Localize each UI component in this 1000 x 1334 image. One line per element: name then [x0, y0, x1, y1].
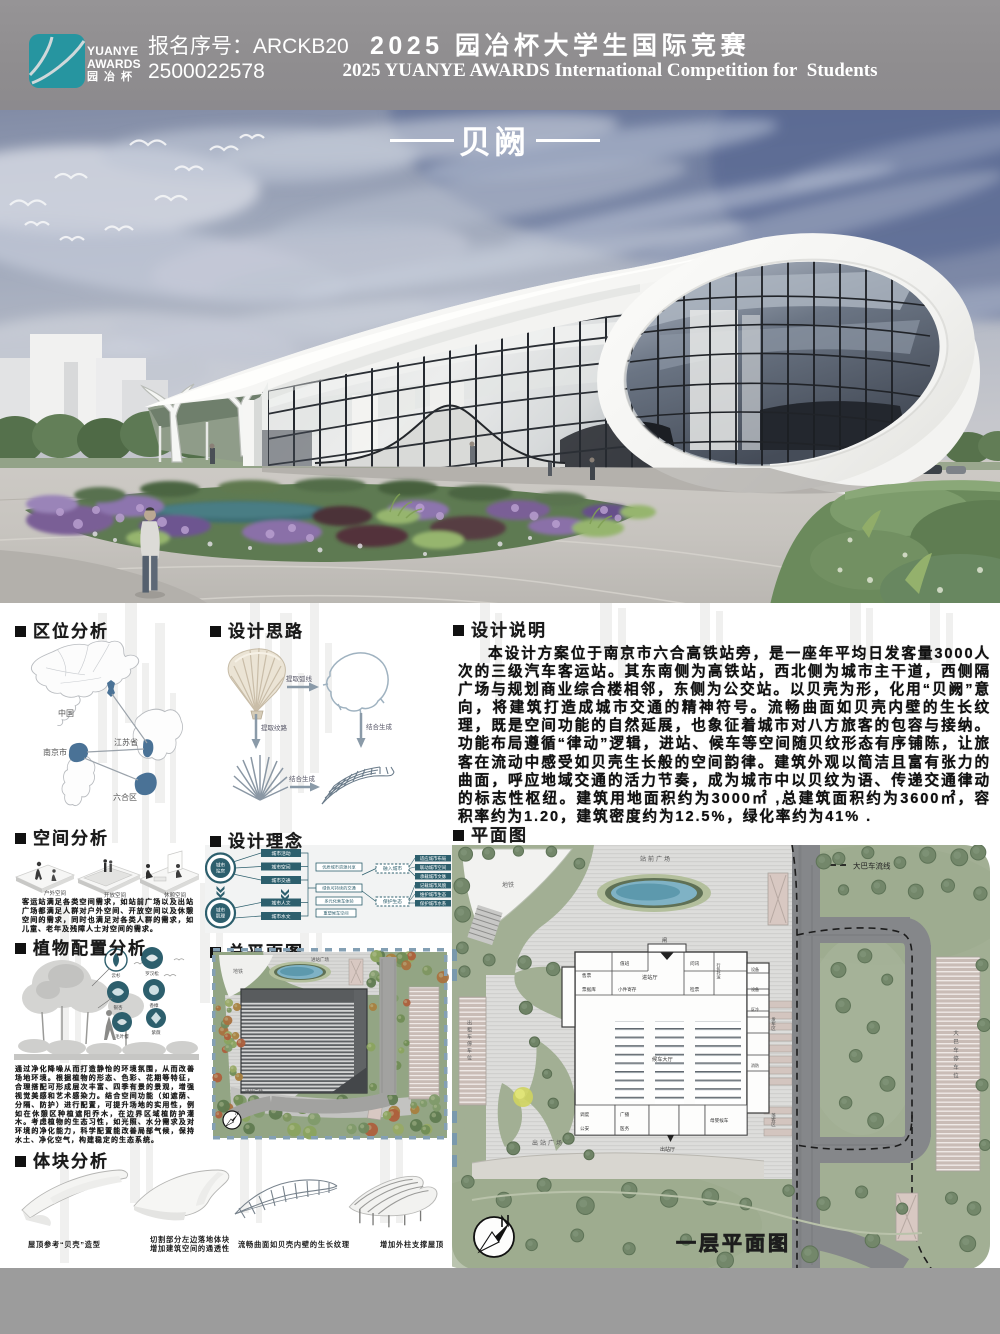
svg-text:维护城市生态: 维护城市生态: [420, 891, 447, 898]
svg-text:闸: 闸: [662, 937, 667, 944]
svg-text:出站广场: 出站广场: [245, 1088, 263, 1095]
svg-text:中国: 中国: [58, 708, 74, 718]
svg-text:优质城市资源共享: 优质城市资源共享: [322, 864, 356, 871]
svg-text:记载城市风貌: 记载城市风貌: [420, 882, 447, 889]
svg-text:城市: 城市: [216, 907, 226, 914]
svg-text:江苏省: 江苏省: [114, 737, 138, 747]
svg-text:检票: 检票: [690, 986, 700, 993]
svg-text:提取纹路: 提取纹路: [261, 723, 288, 732]
svg-text:母婴候车: 母婴候车: [710, 1117, 729, 1124]
svg-text:落客区: 落客区: [771, 1112, 777, 1127]
svg-text:进站厅: 进站厅: [642, 973, 658, 981]
svg-text:行包托运: 行包托运: [717, 962, 722, 980]
svg-text:香樟: 香樟: [150, 1002, 159, 1009]
svg-text:联动城市空间: 联动城市空间: [420, 864, 446, 871]
svg-text:城市人文: 城市人文: [271, 900, 290, 907]
svg-text:贝阙: 贝阙: [459, 124, 529, 160]
svg-text:绿色可持续的交通: 绿色可持续的交通: [322, 885, 356, 892]
svg-text:消防: 消防: [751, 1062, 759, 1068]
svg-text:云杉: 云杉: [112, 972, 121, 979]
svg-text:一层平面图: 一层平面图: [676, 1232, 791, 1255]
svg-text:广播: 广播: [620, 1111, 630, 1118]
svg-text:站房: 站房: [216, 868, 226, 875]
svg-text:大巴车流线: 大巴车流线: [853, 861, 891, 871]
svg-text:设备: 设备: [751, 986, 759, 992]
svg-text:户外空间: 户外空间: [44, 889, 66, 897]
svg-text:票据库: 票据库: [582, 986, 596, 993]
svg-text:公安: 公安: [580, 1125, 590, 1132]
svg-text:发车区: 发车区: [771, 1016, 777, 1031]
svg-text:保护城市水系: 保护城市水系: [420, 900, 447, 907]
svg-text:N: N: [234, 1112, 239, 1117]
svg-text:融入城市: 融入城市: [383, 865, 402, 872]
svg-text:多元化乘车体验: 多元化乘车体验: [324, 898, 354, 905]
svg-text:城市交通: 城市交通: [271, 877, 290, 884]
svg-text:售票: 售票: [582, 972, 592, 979]
svg-text:城市水文: 城市水文: [271, 913, 290, 920]
svg-text:出站厅: 出站厅: [660, 1146, 675, 1153]
svg-text:值班: 值班: [620, 960, 630, 967]
svg-text:提取弧线: 提取弧线: [286, 674, 313, 683]
svg-text:城市空间: 城市空间: [271, 864, 290, 871]
svg-text:区冷: 区冷: [751, 1006, 759, 1012]
svg-text:医务: 医务: [620, 1125, 630, 1132]
svg-text:罗汉松: 罗汉松: [145, 970, 159, 977]
svg-text:设备: 设备: [751, 966, 759, 972]
svg-text:保护生态: 保护生态: [383, 898, 402, 905]
svg-text:站前广场: 站前广场: [640, 855, 672, 863]
svg-text:进站广场: 进站广场: [311, 956, 329, 963]
svg-text:银杏: 银杏: [114, 1004, 123, 1011]
svg-text:结合生成: 结合生成: [366, 722, 393, 731]
svg-text:候车大厅: 候车大厅: [652, 1055, 673, 1063]
svg-text:重塑候车空间: 重塑候车空间: [323, 910, 348, 917]
svg-text:地铁: 地铁: [502, 881, 514, 889]
svg-text:城市: 城市: [216, 862, 226, 869]
svg-text:毛叶樱: 毛叶樱: [115, 1033, 129, 1040]
svg-text:问讯: 问讯: [690, 960, 700, 967]
svg-text:紫薇: 紫薇: [152, 1029, 161, 1036]
svg-text:调度: 调度: [580, 1111, 590, 1118]
svg-text:小件寄存: 小件寄存: [618, 986, 637, 993]
svg-text:六合区: 六合区: [113, 792, 137, 802]
svg-text:承载城市文脉: 承载城市文脉: [420, 873, 447, 880]
svg-text:大巴车停车位: 大巴车停车位: [952, 1029, 959, 1081]
svg-text:出租车停车位: 出租车停车位: [466, 1019, 472, 1062]
svg-text:适应城市布局: 适应城市布局: [420, 855, 446, 862]
svg-text:南京市: 南京市: [43, 747, 67, 757]
svg-text:地铁: 地铁: [233, 968, 243, 975]
svg-text:结合生成: 结合生成: [289, 774, 316, 783]
svg-text:出站广场: 出站广场: [532, 1139, 564, 1147]
